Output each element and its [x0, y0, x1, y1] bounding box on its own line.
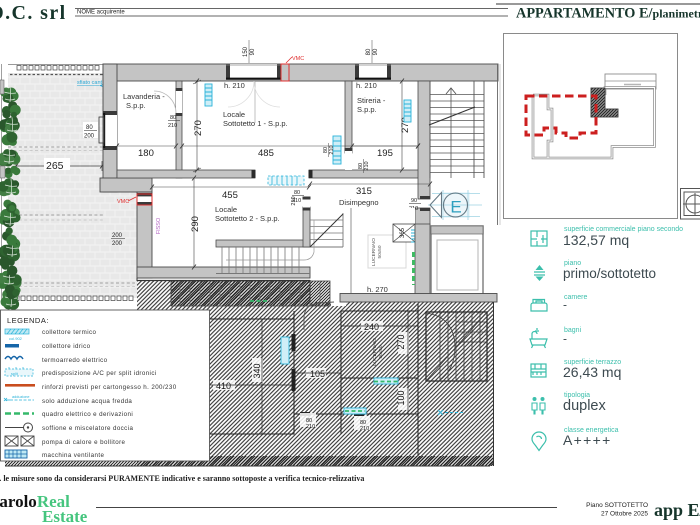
svg-text:camere: camere [564, 294, 587, 301]
svg-text:NOME acquirente: NOME acquirente [77, 10, 125, 16]
svg-text:105: 105 [310, 369, 325, 379]
svg-text:410: 410 [216, 381, 231, 391]
svg-text:90: 90 [411, 198, 417, 204]
svg-text:150: 150 [243, 46, 249, 57]
svg-text:80: 80 [170, 115, 176, 121]
svg-text:LEGENDA:: LEGENDA: [7, 316, 49, 325]
svg-text:80: 80 [366, 48, 372, 55]
svg-text:Stireria -: Stireria - [357, 96, 386, 105]
svg-text:132,57 mq: 132,57 mq [563, 232, 629, 248]
svg-text:240: 240 [364, 322, 379, 332]
svg-text:265: 265 [46, 160, 64, 172]
svg-text:predisposizione A/C per split: predisposizione A/C per split idronici [42, 370, 157, 377]
svg-text:200: 200 [112, 241, 123, 247]
svg-text:-: - [563, 298, 567, 312]
svg-text:290: 290 [190, 216, 201, 232]
svg-text:485: 485 [258, 148, 274, 159]
svg-text:pompa di calore e bollitore: pompa di calore e bollitore [42, 439, 126, 446]
svg-text:270: 270 [396, 334, 406, 349]
svg-text:365: 365 [400, 227, 406, 238]
svg-text:Piano SOTTOTETTO: Piano SOTTOTETTO [586, 502, 648, 509]
svg-text:S.p.p.: S.p.p. [357, 105, 377, 114]
svg-text:340: 340 [252, 363, 262, 378]
svg-text:180: 180 [138, 148, 154, 159]
svg-text:315: 315 [356, 186, 372, 197]
svg-text:VMC: VMC [117, 199, 129, 205]
svg-text:80: 80 [294, 190, 300, 196]
svg-text:FISSO: FISSO [156, 217, 162, 234]
svg-text:termoarredo elettrico: termoarredo elettrico [42, 357, 108, 364]
svg-text:Estate: Estate [42, 507, 88, 525]
svg-text:455: 455 [222, 190, 238, 201]
svg-text:100: 100 [396, 390, 406, 405]
svg-text:A.D.C. srl: A.D.C. srl [0, 2, 67, 24]
svg-text:90: 90 [373, 48, 379, 55]
svg-text:duplex: duplex [563, 398, 606, 414]
svg-text:26,43 mq: 26,43 mq [563, 364, 621, 380]
svg-text:Disimpegno: Disimpegno [339, 198, 379, 207]
svg-text:h. 270: h. 270 [367, 285, 388, 294]
svg-text:VMC: VMC [292, 56, 304, 62]
svg-text:col.902: col.902 [9, 336, 23, 341]
svg-text:adduzione: adduzione [12, 395, 30, 399]
svg-text:-: - [563, 332, 567, 346]
svg-text:split: split [11, 372, 19, 376]
svg-text:210: 210 [364, 161, 370, 170]
svg-text:50x50: 50x50 [378, 345, 384, 358]
svg-text:Lavanderia -: Lavanderia - [123, 92, 165, 101]
svg-text:h. 210: h. 210 [356, 81, 377, 90]
svg-text:app E/: app E/ [654, 500, 700, 520]
svg-text:210: 210 [168, 123, 177, 129]
svg-text:210: 210 [291, 196, 297, 205]
svg-text:solo adduzione acqua fredda: solo adduzione acqua fredda [42, 398, 132, 405]
svg-text:200: 200 [84, 134, 95, 140]
svg-text:27 Ottobre 2025: 27 Ottobre 2025 [601, 511, 648, 518]
svg-text:Locale: Locale [223, 110, 245, 119]
svg-text:Locale: Locale [215, 205, 237, 214]
svg-text:90: 90 [250, 48, 256, 55]
svg-text:primo/sottotetto: primo/sottotetto [563, 266, 656, 281]
svg-text:E: E [450, 198, 461, 217]
svg-text:210: 210 [360, 426, 369, 432]
svg-text:A++++: A++++ [563, 432, 612, 448]
svg-text:270: 270 [193, 120, 204, 136]
svg-text:210: 210 [306, 424, 315, 430]
svg-text:collettore termico: collettore termico [42, 329, 96, 336]
svg-text:B. le misure sono da considera: B. le misure sono da considerarsi PURAME… [0, 474, 364, 483]
svg-text:h. 210: h. 210 [224, 81, 245, 90]
svg-text:S.p.p.: S.p.p. [126, 101, 146, 110]
svg-text:Sottotetto 2 - S.p.p.: Sottotetto 2 - S.p.p. [215, 214, 280, 223]
svg-text:LUCERNAIO: LUCERNAIO [372, 338, 378, 366]
svg-text:80: 80 [86, 125, 93, 131]
svg-text:210: 210 [329, 145, 335, 154]
svg-text:macchina ventilante: macchina ventilante [42, 452, 104, 459]
svg-text:50x50: 50x50 [377, 245, 383, 258]
svg-text:quadro elettrico e derivazioni: quadro elettrico e derivazioni [42, 411, 133, 418]
svg-text:195: 195 [377, 148, 393, 159]
svg-text:LUCERNAIO: LUCERNAIO [371, 238, 377, 266]
svg-text:200: 200 [112, 233, 123, 239]
svg-text:collettore idrico: collettore idrico [42, 343, 91, 350]
svg-text:APPARTAMENTO E/planimetria: APPARTAMENTO E/planimetria [516, 6, 700, 22]
svg-text:soffione e miscelatore doccia: soffione e miscelatore doccia [42, 425, 133, 432]
svg-text:rinforzi previsti per cartonge: rinforzi previsti per cartongesso h. 200… [42, 384, 177, 391]
svg-text:Sottotetto 1 - S.p.p.: Sottotetto 1 - S.p.p. [223, 119, 288, 128]
